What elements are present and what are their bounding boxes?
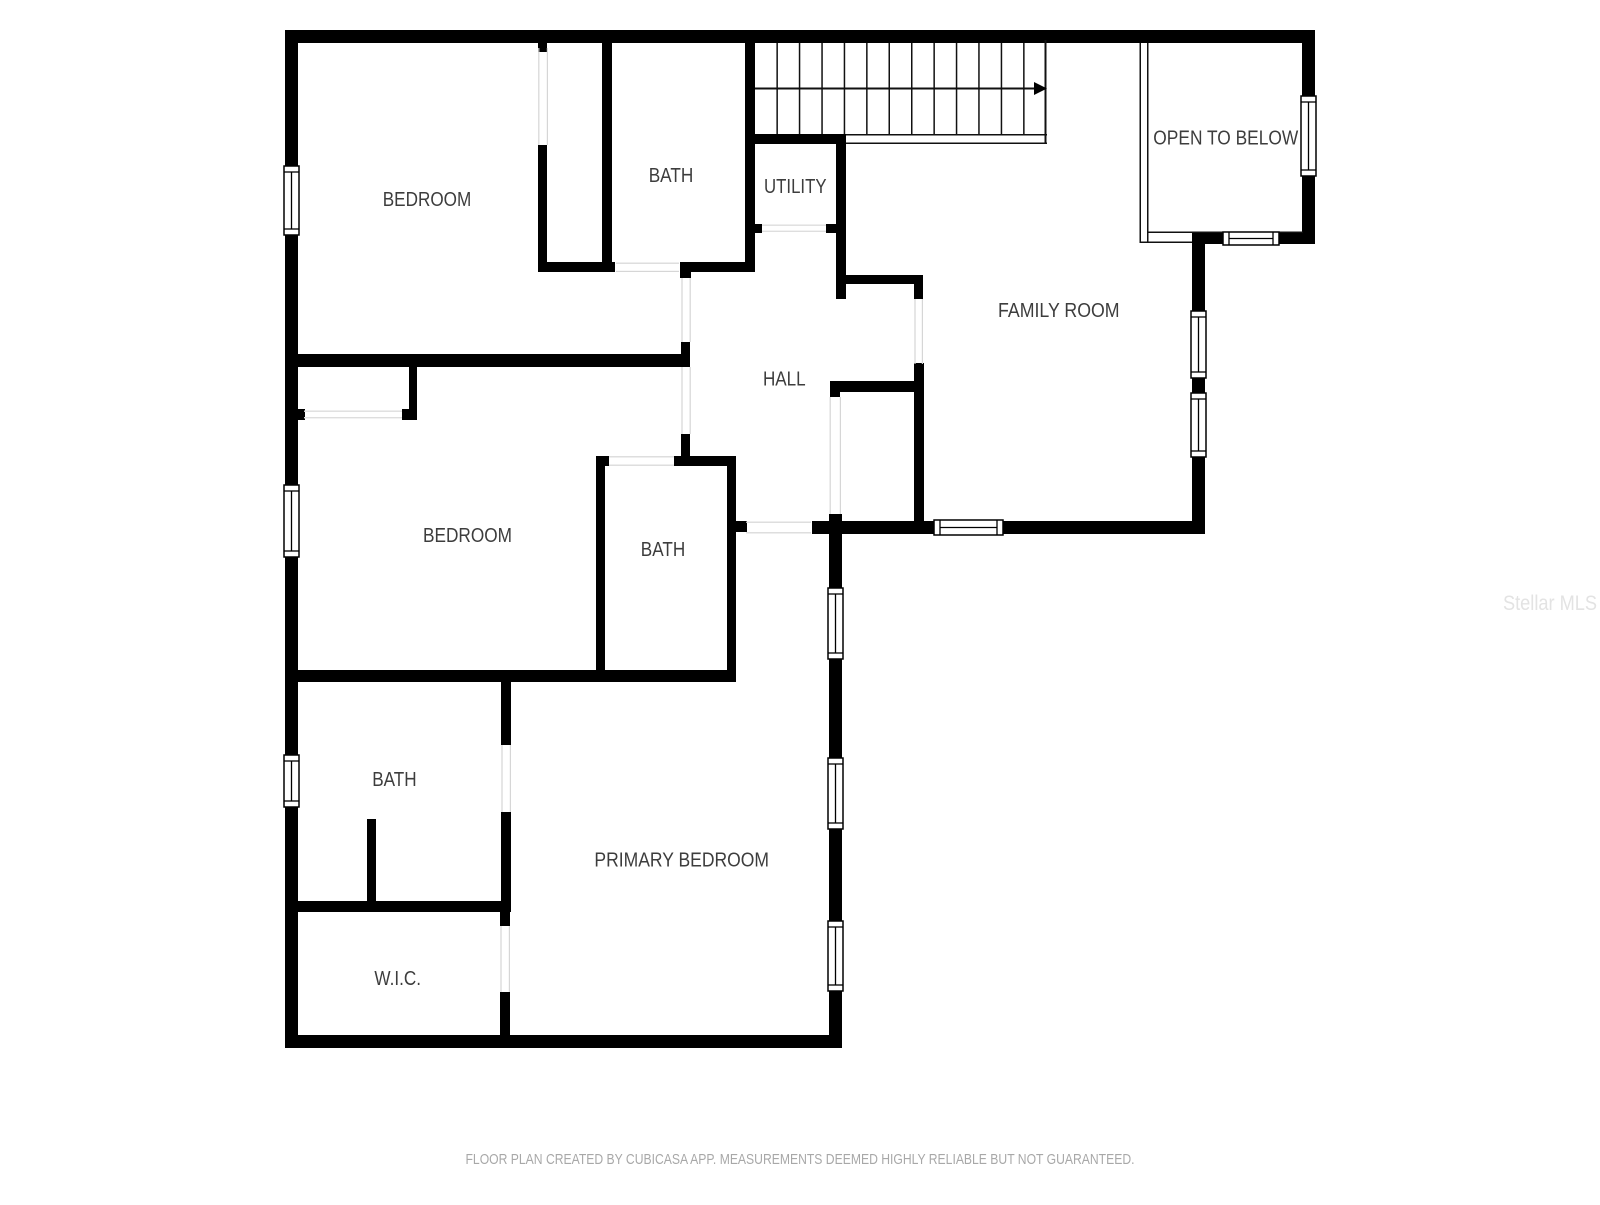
- svg-text:PRIMARY BEDROOM: PRIMARY BEDROOM: [594, 850, 769, 872]
- svg-text:BEDROOM: BEDROOM: [423, 525, 512, 547]
- svg-text:BEDROOM: BEDROOM: [383, 189, 472, 211]
- svg-text:FAMILY ROOM: FAMILY ROOM: [998, 300, 1120, 322]
- svg-text:UTILITY: UTILITY: [764, 176, 827, 198]
- svg-text:Stellar MLS: Stellar MLS: [1503, 592, 1597, 615]
- svg-text:BATH: BATH: [641, 539, 685, 561]
- svg-text:W.I.C.: W.I.C.: [374, 968, 421, 990]
- svg-text:BATH: BATH: [649, 165, 694, 187]
- svg-text:OPEN TO BELOW: OPEN TO BELOW: [1153, 128, 1298, 150]
- svg-text:BATH: BATH: [372, 769, 416, 791]
- svg-text:FLOOR PLAN CREATED BY CUBICASA: FLOOR PLAN CREATED BY CUBICASA APP. MEAS…: [466, 1151, 1135, 1168]
- svg-text:HALL: HALL: [763, 369, 806, 391]
